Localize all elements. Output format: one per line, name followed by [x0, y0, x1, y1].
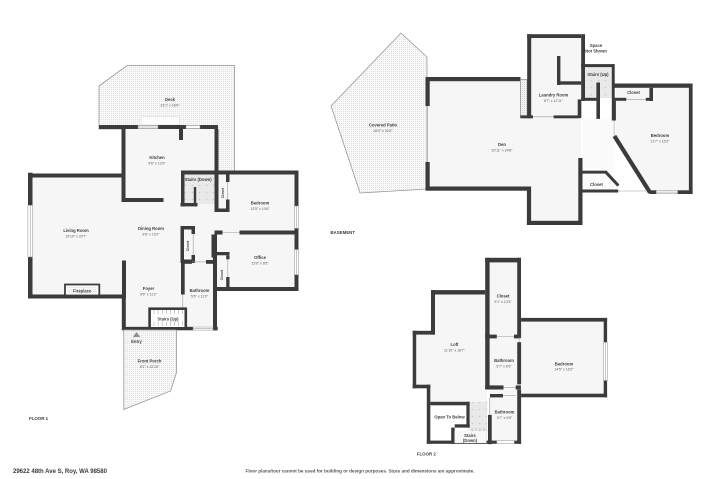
svg-text:FLOOR 2: FLOOR 2	[417, 452, 437, 457]
svg-text:29622 48th Ave S, Roy, WA 9858: 29622 48th Ave S, Roy, WA 98580	[13, 469, 108, 475]
svg-text:Bedroom: Bedroom	[555, 361, 574, 366]
svg-text:23'1" x 16'6": 23'1" x 16'6"	[160, 104, 180, 108]
svg-text:Foyer: Foyer	[143, 286, 155, 291]
svg-text:13'0" x 8'5": 13'0" x 8'5"	[251, 261, 269, 265]
svg-text:5'7" x 8'3": 5'7" x 8'3"	[496, 365, 512, 369]
svg-text:Kitchen: Kitchen	[149, 155, 165, 160]
svg-text:11'10" x 18'7": 11'10" x 18'7"	[444, 349, 466, 353]
svg-text:Covered Patio: Covered Patio	[369, 123, 398, 128]
svg-text:15'10" x 20'7": 15'10" x 20'7"	[65, 235, 87, 239]
svg-text:11'7" x 15'3": 11'7" x 15'3"	[651, 140, 671, 144]
svg-text:9'6" x 12'9": 9'6" x 12'9"	[148, 162, 166, 166]
svg-text:Fireplace: Fireplace	[73, 289, 92, 294]
svg-text:Closet: Closet	[220, 269, 224, 280]
svg-text:Not Shown: Not Shown	[585, 48, 607, 53]
svg-text:14'5" x 16'2": 14'5" x 16'2"	[554, 368, 574, 372]
svg-text:(Down): (Down)	[463, 438, 478, 443]
svg-text:5'6" x 11'0": 5'6" x 11'0"	[191, 294, 209, 298]
svg-text:Bedroom: Bedroom	[651, 133, 670, 138]
svg-text:Open To Below: Open To Below	[434, 415, 465, 420]
svg-text:Laundry Room: Laundry Room	[539, 93, 569, 98]
svg-text:Bedroom: Bedroom	[251, 201, 270, 206]
svg-text:16'0" x 34'2": 16'0" x 34'2"	[373, 129, 393, 133]
svg-text:Deck: Deck	[165, 97, 176, 102]
svg-text:Office: Office	[254, 255, 267, 260]
svg-text:Closet: Closet	[221, 187, 225, 198]
svg-text:Entry: Entry	[131, 339, 142, 344]
svg-text:Closet: Closet	[497, 294, 510, 299]
svg-text:Stairs (Down): Stairs (Down)	[185, 177, 213, 182]
svg-text:9'1" x 13'3": 9'1" x 13'3"	[494, 300, 512, 304]
svg-text:Den: Den	[498, 142, 506, 147]
svg-text:BASEMENT: BASEMENT	[330, 230, 355, 235]
svg-text:Front Porch: Front Porch	[138, 359, 162, 364]
svg-text:Space: Space	[590, 43, 603, 48]
svg-text:Bathroom: Bathroom	[190, 288, 210, 293]
svg-text:FLOOR 1: FLOOR 1	[29, 416, 49, 421]
svg-text:Floor plans/tour cannot be use: Floor plans/tour cannot be used for buil…	[246, 469, 475, 474]
svg-text:Loft: Loft	[451, 342, 460, 347]
svg-text:20'11" x 24'8": 20'11" x 24'8"	[492, 148, 514, 152]
svg-text:8'1" x 12'10": 8'1" x 12'10"	[140, 365, 160, 369]
svg-text:Living Room: Living Room	[63, 228, 89, 233]
svg-text:Stairs (Up): Stairs (Up)	[587, 72, 609, 77]
svg-text:Dining Room: Dining Room	[138, 226, 164, 231]
svg-text:13'5" x 10'6": 13'5" x 10'6"	[250, 207, 270, 211]
svg-text:Bathroom: Bathroom	[494, 358, 514, 363]
svg-text:Closet: Closet	[627, 90, 640, 95]
svg-text:8'7" x 12'11": 8'7" x 12'11"	[544, 99, 564, 103]
svg-text:Closet: Closet	[186, 240, 190, 251]
svg-text:Closet: Closet	[590, 182, 603, 187]
svg-text:9'6" x 11'2": 9'6" x 11'2"	[140, 292, 158, 296]
svg-text:5'7" x 9'6": 5'7" x 9'6"	[497, 416, 513, 420]
svg-text:Bathroom: Bathroom	[495, 410, 515, 415]
svg-text:Stairs (Up): Stairs (Up)	[157, 316, 179, 321]
svg-text:9'6" x 10'2": 9'6" x 10'2"	[142, 233, 160, 237]
